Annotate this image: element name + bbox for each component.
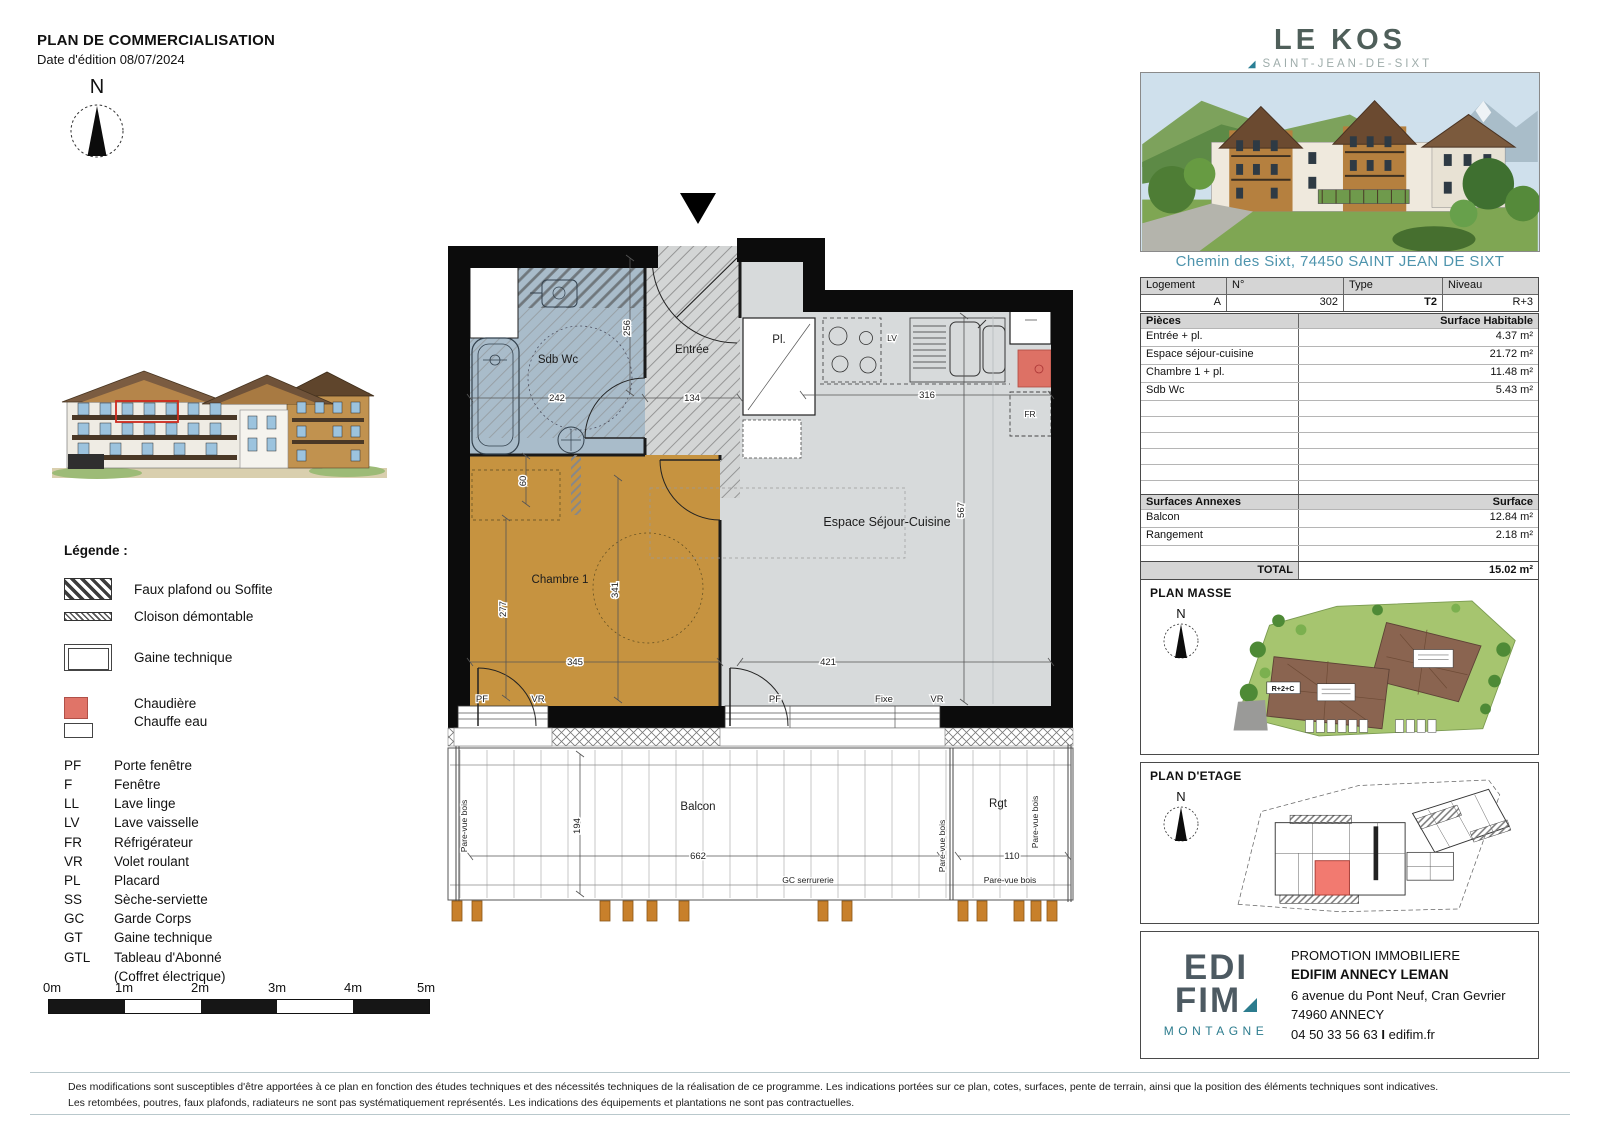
label-parevue-4: Pare-vue bois — [1030, 796, 1040, 848]
scale-bar: 0m 1m 2m 3m 4m 5m — [48, 980, 430, 1016]
label-parevue-3: Pare-vue bois — [937, 820, 947, 872]
table-row-empty — [1141, 432, 1538, 448]
gaine-swatch — [64, 644, 112, 671]
plan-masse-building-label: R+2+C — [1272, 684, 1295, 693]
edifim-triangle-icon — [1243, 998, 1257, 1012]
table-row: Entrée + pl.4.37 m² — [1141, 328, 1538, 346]
dim-345: 345 — [567, 657, 583, 668]
legend-title: Légende : — [64, 543, 394, 558]
table-row: Rangement2.18 m² — [1141, 527, 1538, 545]
promoter-info: PROMOTION IMMOBILIERE EDIFIM ANNECY LEMA… — [1291, 946, 1506, 1044]
edifim-montagne: MONTAGNE — [1141, 1024, 1291, 1038]
unit-level: R+3 — [1443, 295, 1538, 311]
table-row-empty — [1141, 400, 1538, 416]
chaudiere-swatch — [64, 695, 112, 738]
dim-110: 110 — [1004, 851, 1019, 862]
north-compass: N — [66, 76, 128, 166]
unit-building: A — [1141, 295, 1227, 311]
label-lv: LV — [887, 333, 897, 343]
compass-icon — [1159, 802, 1203, 846]
unit-type: T2 — [1344, 295, 1443, 311]
disclaimer-line2: Les retombées, poutres, faux plafonds, r… — [68, 1095, 1548, 1111]
address: Chemin des Sixt, 74450 SAINT JEAN DE SIX… — [1140, 253, 1540, 270]
plan-etage-box: PLAN D'ETAGE N — [1140, 762, 1539, 924]
compass-icon — [1159, 619, 1203, 663]
label-parevue-2: Pare-vue bois — [459, 800, 469, 852]
faux-plafond-swatch — [64, 578, 112, 600]
legend-item-cloison: Cloison démontable — [64, 609, 394, 624]
label-placard: Pl. — [772, 334, 785, 346]
legend-item-gaine: Gaine technique — [64, 644, 394, 671]
table-row-empty — [1141, 448, 1538, 464]
title-block: PLAN DE COMMERCIALISATION Date d'édition… — [37, 32, 275, 67]
unit-table-header: Logement N° Type Niveau — [1141, 278, 1538, 294]
legend: Légende : Faux plafond ou Soffite Cloiso… — [64, 543, 394, 986]
label-sejour: Espace Séjour-Cuisine — [823, 515, 950, 529]
plan-masse-drawing: R+2+C — [1211, 586, 1535, 750]
plan-etage-drawing — [1201, 769, 1535, 919]
edition-date: Date d'édition 08/07/2024 — [37, 52, 275, 67]
legend-label: Cloison démontable — [134, 609, 253, 624]
brand-triangle-icon: ◢ — [1248, 59, 1259, 70]
north-label: N — [66, 76, 128, 99]
table-row: Balcon12.84 m² — [1141, 509, 1538, 527]
chauffe-eau-icon — [64, 723, 93, 738]
legend-label: Gaine technique — [134, 650, 232, 665]
label-rangement: Rgt — [989, 798, 1008, 810]
promoter-name: EDIFIM ANNECY LEMAN — [1291, 965, 1506, 985]
floor-plan: 242 134 256 316 567 60 277 341 345 421 1… — [440, 188, 1080, 938]
unit-highlight-etage — [1315, 861, 1349, 895]
chaudiere-box — [1018, 350, 1051, 387]
chaudiere-icon — [64, 697, 88, 719]
footer-divider-bottom — [30, 1114, 1570, 1115]
building-photo — [1140, 72, 1540, 252]
pieces-table: Pièces Surface Habitable Entrée + pl.4.3… — [1140, 313, 1539, 518]
legend-abbreviations: PFPorte fenêtre FFenêtre LLLave linge LV… — [64, 756, 394, 986]
dim-567: 567 — [956, 502, 967, 518]
promoter-line1: PROMOTION IMMOBILIERE — [1291, 946, 1506, 966]
room-chambre — [470, 455, 720, 706]
dim-256: 256 — [622, 320, 633, 336]
dim-421: 421 — [820, 657, 836, 668]
brand-location: ◢SAINT-JEAN-DE-SIXT — [1140, 58, 1540, 70]
building-photo-render — [1141, 73, 1539, 251]
balcony-posts — [452, 901, 1057, 921]
entrance-marker-icon — [680, 193, 716, 224]
dim-662: 662 — [690, 851, 706, 862]
promoter-box: EDI FIM MONTAGNE PROMOTION IMMOBILIERE E… — [1140, 931, 1539, 1059]
promoter-address2: 74960 ANNECY — [1291, 1005, 1506, 1025]
legend-item-chaudiere: Chaudière Chauffe eau — [64, 695, 394, 738]
page: PLAN DE COMMERCIALISATION Date d'édition… — [0, 0, 1600, 1131]
table-row-empty — [1141, 545, 1538, 561]
table-row-empty — [1141, 464, 1538, 480]
dim-277: 277 — [498, 601, 509, 617]
table-row-empty — [1141, 416, 1538, 432]
edifim-logo-bottom: FIM — [1141, 985, 1291, 1017]
cloison-swatch — [64, 612, 112, 621]
disclaimer: Des modifications sont susceptibles d'êt… — [68, 1079, 1548, 1112]
dim-60: 60 — [518, 476, 529, 487]
balcony — [448, 744, 1073, 921]
unit-number: 302 — [1227, 295, 1344, 311]
label-balcon: Balcon — [680, 801, 715, 813]
label-vr-2: VR — [930, 694, 943, 705]
building-elevation-drawing — [52, 358, 387, 483]
brand-block: LE KOS ◢SAINT-JEAN-DE-SIXT — [1140, 24, 1540, 70]
pieces-table-header: Pièces Surface Habitable — [1141, 314, 1538, 328]
gtl-box — [743, 420, 801, 458]
label-entree: Entrée — [675, 344, 709, 356]
plan-masse-compass: N — [1159, 606, 1203, 668]
legend-item-faux-plafond: Faux plafond ou Soffite — [64, 578, 394, 600]
legend-label: Chaudière Chauffe eau — [134, 695, 207, 731]
table-row: Espace séjour-cuisine21.72 m² — [1141, 346, 1538, 364]
dim-134: 134 — [684, 393, 700, 404]
legend-label: Faux plafond ou Soffite — [134, 582, 273, 597]
scale-bar-segments — [48, 999, 430, 1014]
dim-242: 242 — [549, 393, 565, 404]
plan-masse-box: PLAN MASSE N R+2+C — [1140, 579, 1539, 755]
label-fr: FR — [1024, 409, 1035, 419]
brand-name: LE KOS — [1140, 24, 1540, 57]
label-fixe: Fixe — [875, 694, 893, 705]
dim-316: 316 — [919, 390, 935, 401]
disclaimer-line1: Des modifications sont susceptibles d'êt… — [68, 1079, 1548, 1095]
label-chambre: Chambre 1 — [532, 574, 589, 586]
unit-table: Logement N° Type Niveau A 302 T2 R+3 — [1140, 277, 1539, 312]
label-parevue-1: Pare-vue bois — [984, 875, 1036, 885]
edifim-logo: EDI FIM MONTAGNE — [1141, 952, 1291, 1037]
label-gc-serrurerie: GC serrurerie — [782, 875, 834, 885]
compass-icon — [66, 99, 128, 161]
basin-icon — [558, 427, 584, 453]
label-vr-1: VR — [531, 694, 544, 705]
page-title: PLAN DE COMMERCIALISATION — [37, 32, 275, 49]
promoter-address1: 6 avenue du Pont Neuf, Cran Gevrier — [1291, 986, 1506, 1006]
table-row: Chambre 1 + pl.11.48 m² — [1141, 364, 1538, 382]
dim-194: 194 — [572, 818, 583, 834]
plan-etage-compass: N — [1159, 789, 1203, 851]
dim-341: 341 — [610, 582, 621, 598]
label-pf-2: PF — [769, 694, 781, 705]
table-row: Sdb Wc5.43 m² — [1141, 382, 1538, 400]
annexes-table-header: Surfaces Annexes Surface — [1141, 495, 1538, 509]
cloison-strip — [571, 455, 581, 515]
label-pf-1: PF — [476, 694, 488, 705]
annexes-table: Surfaces Annexes Surface Balcon12.84 m² … — [1140, 494, 1539, 583]
unit-table-values: A 302 T2 R+3 — [1141, 294, 1538, 311]
label-sdb: Sdb Wc — [538, 354, 579, 366]
promoter-contact: 04 50 33 56 63 I edifim.fr — [1291, 1025, 1506, 1045]
footer-divider-top — [30, 1072, 1570, 1073]
